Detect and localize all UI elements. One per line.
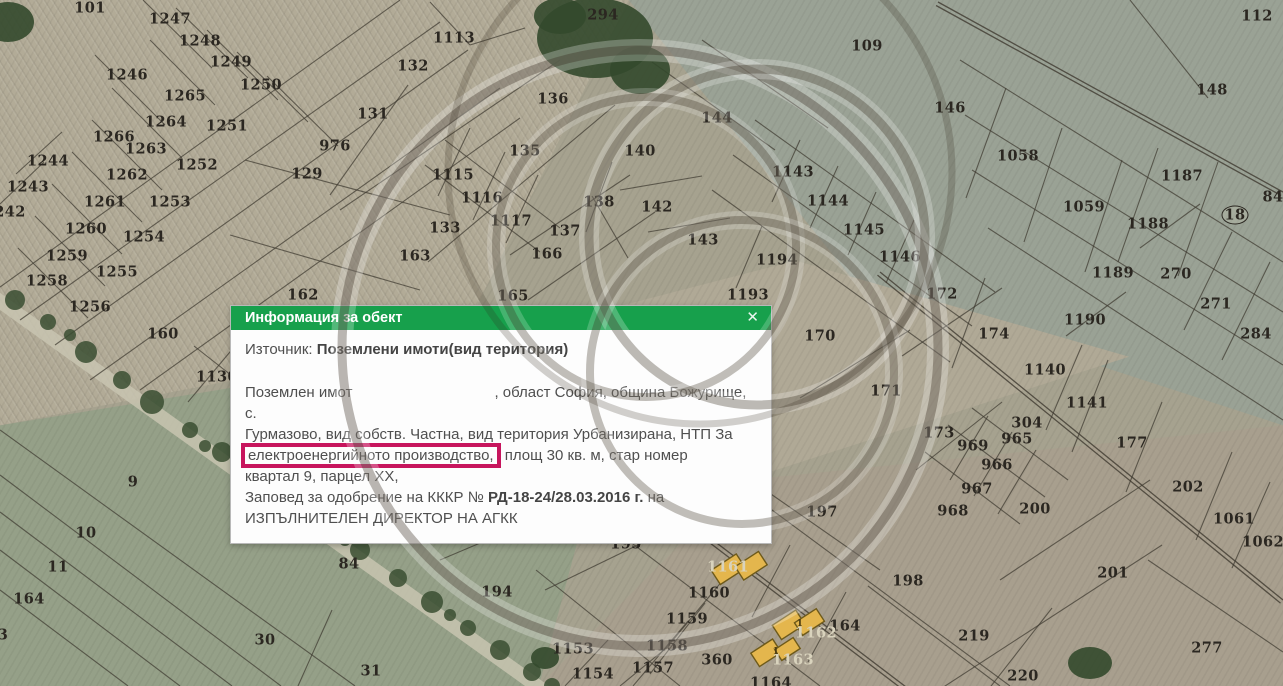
parcel-label: 1251: [206, 118, 248, 135]
parcel-label: 1141: [1066, 395, 1108, 412]
parcel-label: 133: [429, 220, 460, 237]
parcel-label: 1115: [432, 167, 474, 184]
parcel-label: 304: [1011, 415, 1042, 432]
building-label: 1: [797, 619, 804, 629]
parcel-label: 1253: [149, 194, 191, 211]
parcel-label: 1145: [843, 222, 885, 239]
parcel-label: 144: [701, 110, 732, 127]
parcel-label: 1259: [46, 248, 88, 265]
parcel-label: 131: [357, 106, 388, 123]
parcel-label: 1189: [1092, 265, 1134, 282]
parcel-label: 197: [806, 504, 837, 521]
object-description-line: Поземлен имот, област София, община Божу…: [245, 382, 757, 424]
parcel-label: 1113: [433, 30, 475, 47]
parcel-label: 1161: [707, 559, 749, 576]
parcel-label: 1153: [552, 641, 594, 658]
parcel-label: 1190: [1064, 312, 1106, 329]
parcel-label: 164: [13, 591, 44, 608]
parcel-label: 277: [1191, 640, 1222, 657]
parcel-label: 84: [1263, 189, 1283, 206]
parcel-label: 1116: [461, 190, 503, 207]
parcel-label: 112: [1241, 8, 1272, 25]
parcel-label: 1157: [632, 660, 674, 677]
parcel-label: 165: [497, 288, 528, 305]
parcel-label: 174: [978, 326, 1009, 343]
parcel-label: 1247: [149, 11, 191, 28]
parcel-label: 1058: [997, 148, 1039, 165]
parcel-label: 1160: [688, 585, 730, 602]
parcel-label: 1265: [164, 88, 206, 105]
source-label: Източник:: [245, 341, 313, 358]
parcel-label: 137: [549, 223, 580, 240]
parcel-label: 3: [0, 627, 8, 644]
parcel-label: 194: [481, 584, 512, 601]
parcel-label: 1252: [176, 157, 218, 174]
parcel-label: 9: [128, 474, 139, 491]
parcel-label: 162: [287, 287, 318, 304]
parcel-label: 1188: [1127, 216, 1169, 233]
parcel-label: 967: [961, 481, 992, 498]
parcel-label: 200: [1019, 501, 1050, 518]
object-description-line: електроенергийното производство, площ 30…: [245, 445, 757, 466]
parcel-label: 1140: [1024, 362, 1066, 379]
parcel-label: 166: [531, 246, 562, 263]
popup-title: Информация за обект: [231, 310, 734, 326]
order-line: Заповед за одобрение на КККР № РД-18-24/…: [245, 487, 757, 508]
parcel-label: 129: [291, 166, 322, 183]
parcel-label: 1249: [210, 54, 252, 71]
parcel-label: 1258: [26, 273, 68, 290]
parcel-label: 294: [587, 7, 618, 24]
parcel-label: 138: [583, 194, 614, 211]
parcel-label: 1243: [7, 179, 49, 196]
parcel-label: 219: [958, 628, 989, 645]
parcel-label: 966: [981, 457, 1012, 474]
parcel-label: 360: [701, 652, 732, 669]
parcel-label: 284: [1240, 326, 1271, 343]
parcel-label: 202: [1172, 479, 1203, 496]
building-label: 1: [773, 647, 780, 657]
object-description-line: Гурмазово, вид собств. Частна, вид терит…: [245, 424, 757, 445]
parcel-label: 30: [255, 632, 276, 649]
parcel-label: 172: [926, 286, 957, 303]
parcel-label: 1146: [879, 249, 921, 266]
parcel-label: 148: [1196, 82, 1227, 99]
parcel-label: 136: [537, 91, 568, 108]
parcel-label: 1143: [772, 164, 814, 181]
parcel-label: 976: [319, 138, 350, 155]
parcel-label: 201: [1097, 565, 1128, 582]
popup-header: Информация за обект ✕: [231, 306, 771, 330]
parcel-label: 10: [76, 525, 97, 542]
parcel-label: 242: [0, 204, 26, 221]
parcel-label: 220: [1007, 668, 1038, 685]
parcel-label: 1256: [69, 299, 111, 316]
source-value: Поземлени имоти(вид територия): [317, 341, 568, 358]
parcel-label: 1061: [1213, 511, 1255, 528]
parcel-label: 177: [1116, 435, 1147, 452]
parcel-label: 1144: [807, 193, 849, 210]
parcel-label: 1159: [666, 611, 708, 628]
parcel-label: 109: [851, 38, 882, 55]
parcel-label: 968: [937, 503, 968, 520]
parcel-label: 198: [892, 573, 923, 590]
parcel-label: 271: [1200, 296, 1231, 313]
parcel-label: 1244: [27, 153, 69, 170]
parcel-label: 140: [624, 143, 655, 160]
parcel-label: 1261: [84, 194, 126, 211]
parcel-label: 1262: [106, 167, 148, 184]
parcel-label: 11: [48, 559, 69, 576]
parcel-label: 171: [870, 383, 901, 400]
parcel-label: 1062: [1242, 534, 1283, 551]
issuer-line: ИЗПЪЛНИТЕЛЕН ДИРЕКТОР НА АГКК: [245, 508, 757, 529]
parcel-label: 143: [687, 232, 718, 249]
parcel-label: 1246: [106, 67, 148, 84]
close-icon[interactable]: ✕: [734, 306, 771, 330]
parcel-label: 1254: [123, 229, 165, 246]
parcel-label: 270: [1160, 266, 1191, 283]
info-popup: Информация за обект ✕ Източник: Поземлен…: [230, 305, 772, 544]
parcel-label: 84: [339, 556, 360, 573]
parcel-label: 1264: [145, 114, 187, 131]
parcel-label: 1248: [179, 33, 221, 50]
parcel-label: 1263: [125, 141, 167, 158]
parcel-label: 1154: [572, 666, 614, 683]
parcel-label: 965: [1001, 431, 1032, 448]
parcel-label: 160: [147, 326, 178, 343]
parcel-label: 1260: [65, 221, 107, 238]
parcel-label: 969: [957, 438, 988, 455]
parcel-label: 142: [641, 199, 672, 216]
parcel-label: 1255: [96, 264, 138, 281]
parcel-label: 1158: [646, 638, 688, 655]
parcel-label: 1187: [1161, 168, 1203, 185]
parcel-label: 1164: [750, 675, 792, 686]
circled-parcel-label: 18: [1222, 206, 1249, 225]
object-description-line: квартал 9, парцел ХХ,: [245, 466, 757, 487]
parcel-label: 1059: [1063, 199, 1105, 216]
parcel-label: 135: [509, 143, 540, 160]
parcel-label: 1194: [756, 252, 798, 269]
parcel-label: 101: [74, 0, 105, 17]
popup-body: Източник: Поземлени имоти(вид територия)…: [231, 330, 771, 543]
parcel-label: 173: [923, 425, 954, 442]
parcel-label: 1117: [490, 213, 532, 230]
parcel-label: 31: [361, 663, 382, 680]
parcel-label: 170: [804, 328, 835, 345]
parcel-label: 146: [934, 100, 965, 117]
parcel-label: 132: [397, 58, 428, 75]
map-viewport[interactable]: 1011247124812491250124612651264125112661…: [0, 0, 1283, 686]
parcel-label: 163: [399, 248, 430, 265]
parcel-label: 1250: [240, 77, 282, 94]
parcel-label: 1193: [727, 287, 769, 304]
highlighted-text: електроенергийното производство,: [241, 443, 501, 468]
order-number: РД-18-24/28.03.2016 г.: [488, 489, 643, 506]
